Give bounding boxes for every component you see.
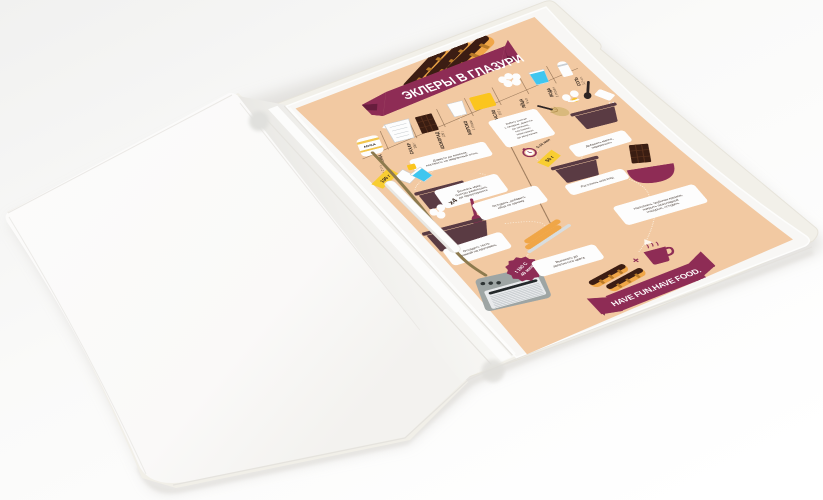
svg-text:+: + xyxy=(628,255,644,265)
svg-text:5-10 мин: 5-10 мин xyxy=(535,138,551,149)
